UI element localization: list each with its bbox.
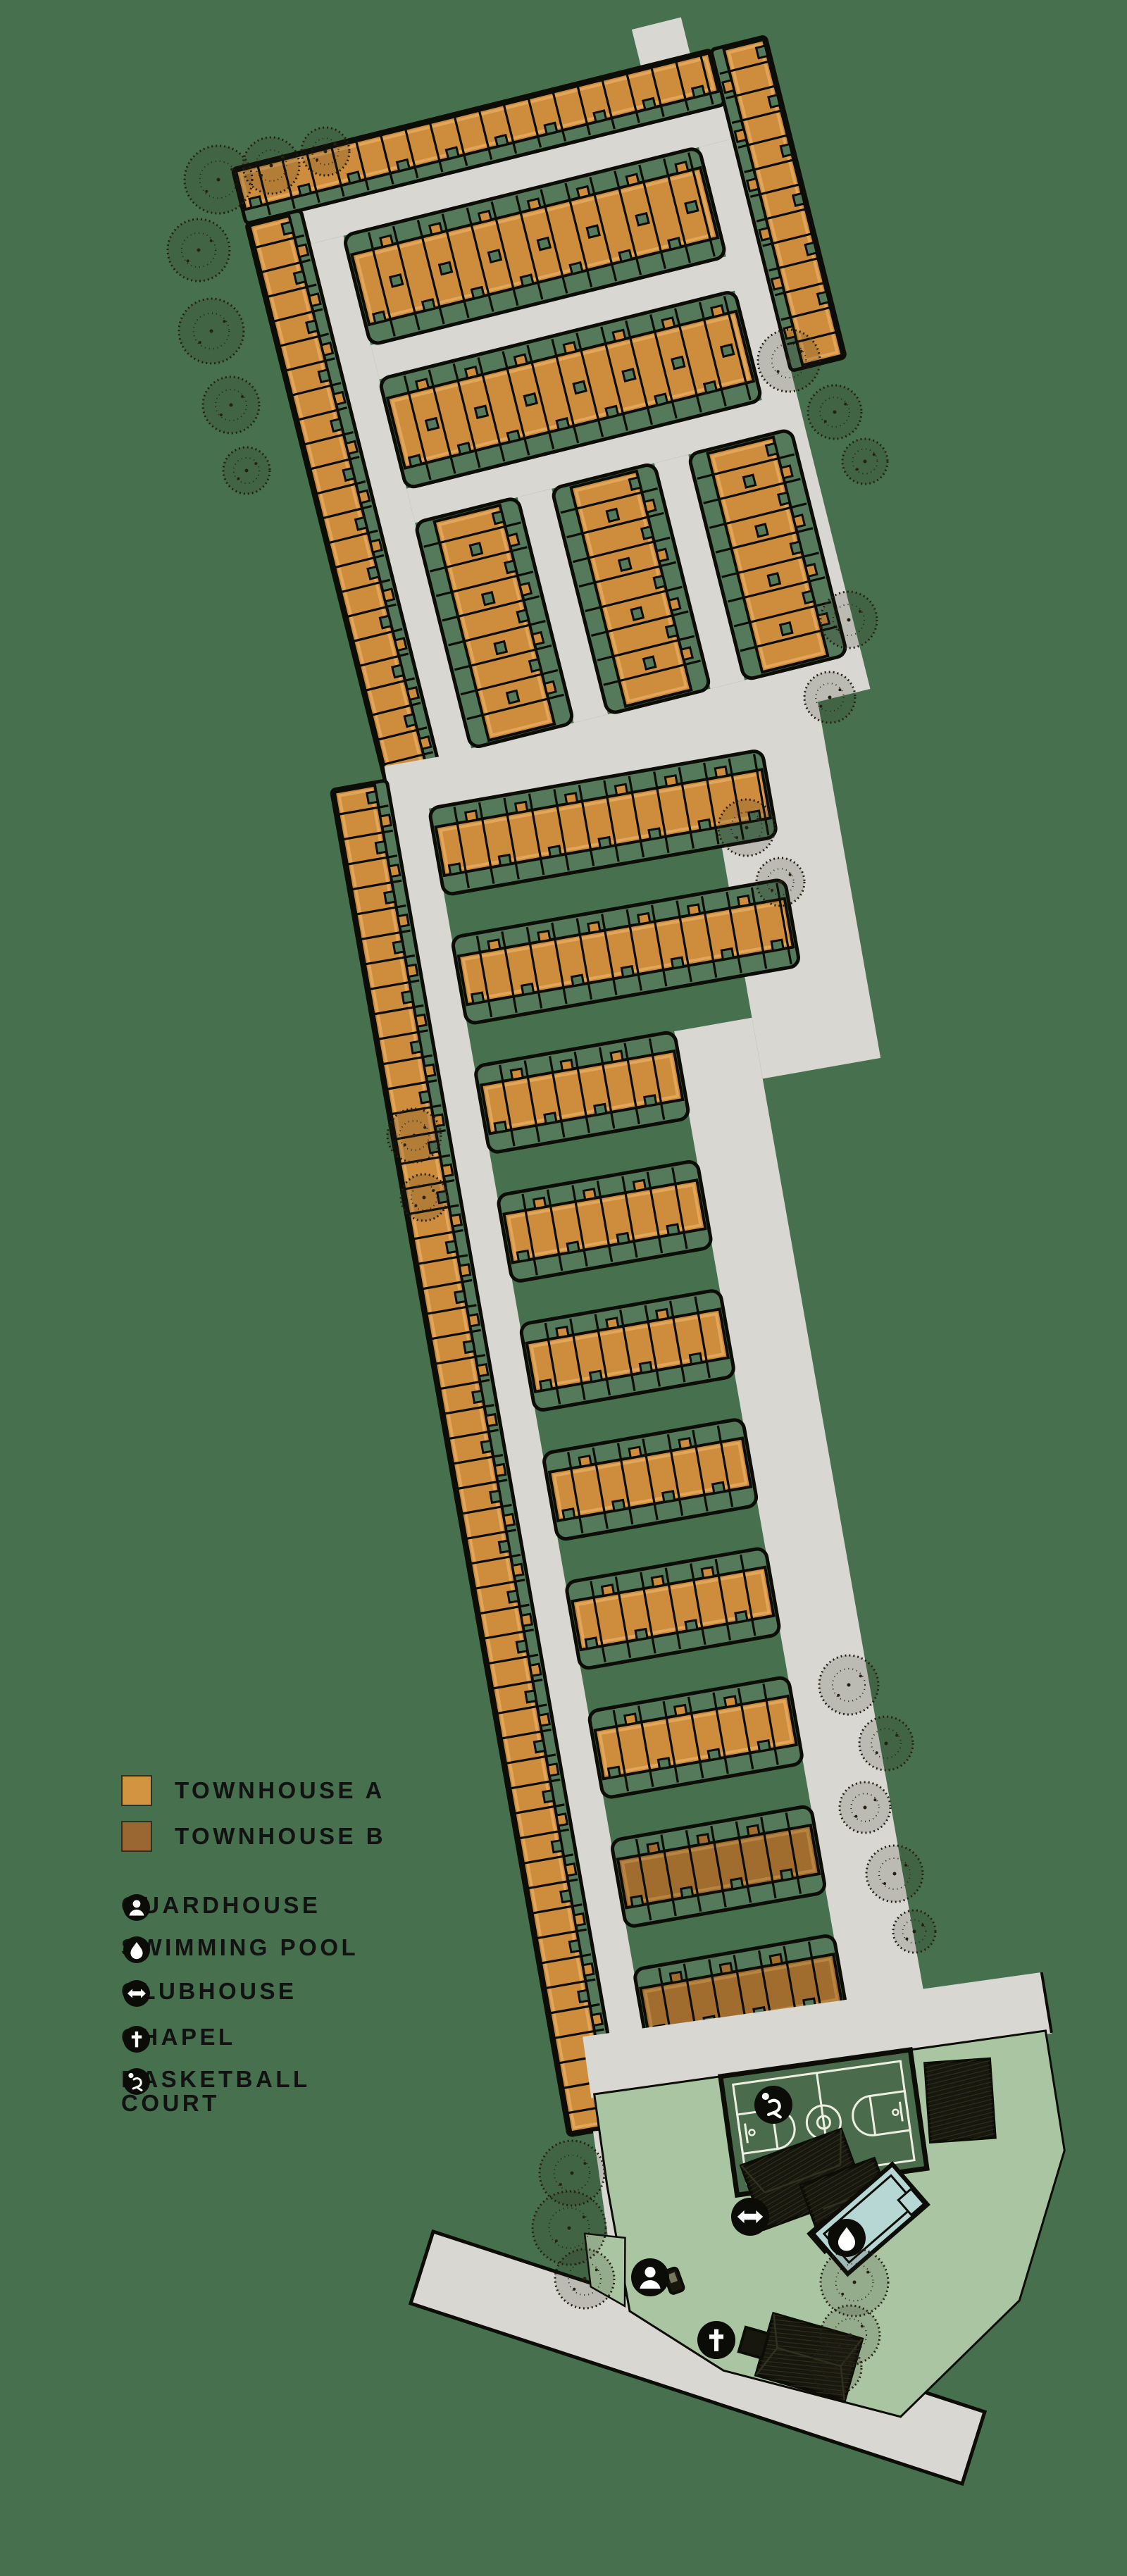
legend-row-chapel: CHAPEL bbox=[121, 2025, 236, 2049]
tree bbox=[840, 1782, 890, 1833]
townhouse-b-label: TOWNHOUSE B bbox=[175, 1824, 386, 1848]
tree bbox=[808, 385, 861, 439]
legend-row-townhouse-a: TOWNHOUSE A bbox=[121, 1775, 385, 1806]
tree bbox=[301, 127, 349, 175]
legend-row-clubhouse: CLUBHOUSE bbox=[121, 1979, 297, 2003]
guardhouse-marker bbox=[631, 2258, 669, 2296]
basketball-player-icon bbox=[123, 2067, 151, 2096]
tree bbox=[387, 1109, 441, 1162]
tree bbox=[811, 2343, 861, 2394]
tree bbox=[859, 1717, 913, 1770]
tree bbox=[168, 219, 230, 281]
double-arrow-icon bbox=[123, 1979, 151, 2008]
tree bbox=[821, 592, 877, 648]
clubhouse-marker bbox=[731, 2198, 769, 2236]
townhouse-b-swatch bbox=[121, 1821, 152, 1852]
site-plan bbox=[0, 0, 1127, 2576]
tree bbox=[804, 672, 855, 723]
tree bbox=[555, 2249, 614, 2308]
swimming-pool-marker bbox=[828, 2219, 866, 2257]
droplet-icon bbox=[123, 1936, 151, 1964]
tree bbox=[223, 447, 270, 494]
tree bbox=[842, 439, 888, 484]
tree bbox=[401, 1174, 447, 1221]
tree bbox=[758, 330, 820, 392]
legend-row-basketball-court: BASKETBALL COURT bbox=[121, 2067, 311, 2115]
tree bbox=[179, 299, 244, 363]
basketball-court-marker bbox=[754, 2086, 792, 2124]
tree bbox=[243, 137, 299, 194]
guardhouse-label: GUARDHOUSE bbox=[121, 1893, 320, 1917]
townhouse-a-label: TOWNHOUSE A bbox=[175, 1779, 385, 1803]
cross-icon bbox=[123, 2025, 151, 2053]
site-map bbox=[0, 0, 1127, 2576]
tree bbox=[203, 377, 259, 433]
legend-row-townhouse-b: TOWNHOUSE B bbox=[121, 1821, 386, 1852]
tree bbox=[718, 799, 775, 856]
hedge-block bbox=[925, 2059, 995, 2142]
tree bbox=[185, 146, 252, 213]
person-icon bbox=[123, 1893, 151, 1922]
legend-row-swimming-pool: SWIMMING POOL bbox=[121, 1936, 359, 1960]
legend-row-guardhouse: GUARDHOUSE bbox=[121, 1893, 320, 1917]
tree bbox=[893, 1910, 935, 1953]
swimming-pool-label: SWIMMING POOL bbox=[121, 1936, 359, 1960]
tree bbox=[756, 858, 804, 906]
site-plan-page: TOWNHOUSE A TOWNHOUSE B GUARDHOUSE SWIMM… bbox=[0, 0, 1127, 2576]
tree bbox=[866, 1846, 923, 1902]
townhouse-a-swatch bbox=[121, 1775, 152, 1806]
chapel-marker bbox=[697, 2321, 735, 2359]
tree bbox=[819, 1655, 878, 1715]
